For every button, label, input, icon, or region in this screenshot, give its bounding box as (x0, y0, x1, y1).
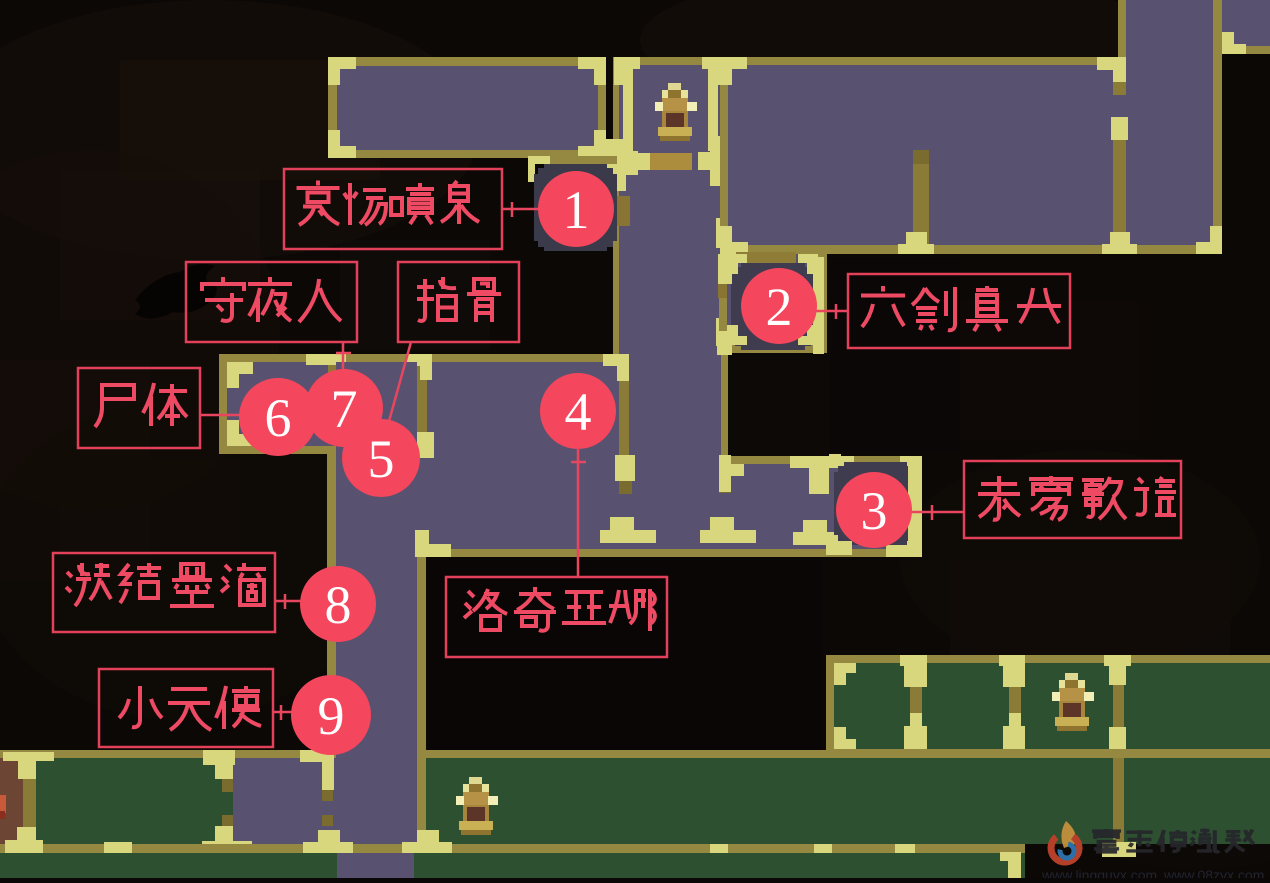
svg-text:5: 5 (368, 429, 395, 489)
svg-text:7: 7 (331, 379, 358, 439)
svg-text:8: 8 (325, 575, 352, 635)
svg-text:4: 4 (565, 382, 592, 442)
svg-text:2: 2 (766, 277, 793, 337)
svg-text:9: 9 (318, 686, 345, 746)
svg-text:1: 1 (563, 180, 590, 240)
svg-text:6: 6 (265, 388, 292, 448)
svg-text:3: 3 (861, 481, 888, 541)
